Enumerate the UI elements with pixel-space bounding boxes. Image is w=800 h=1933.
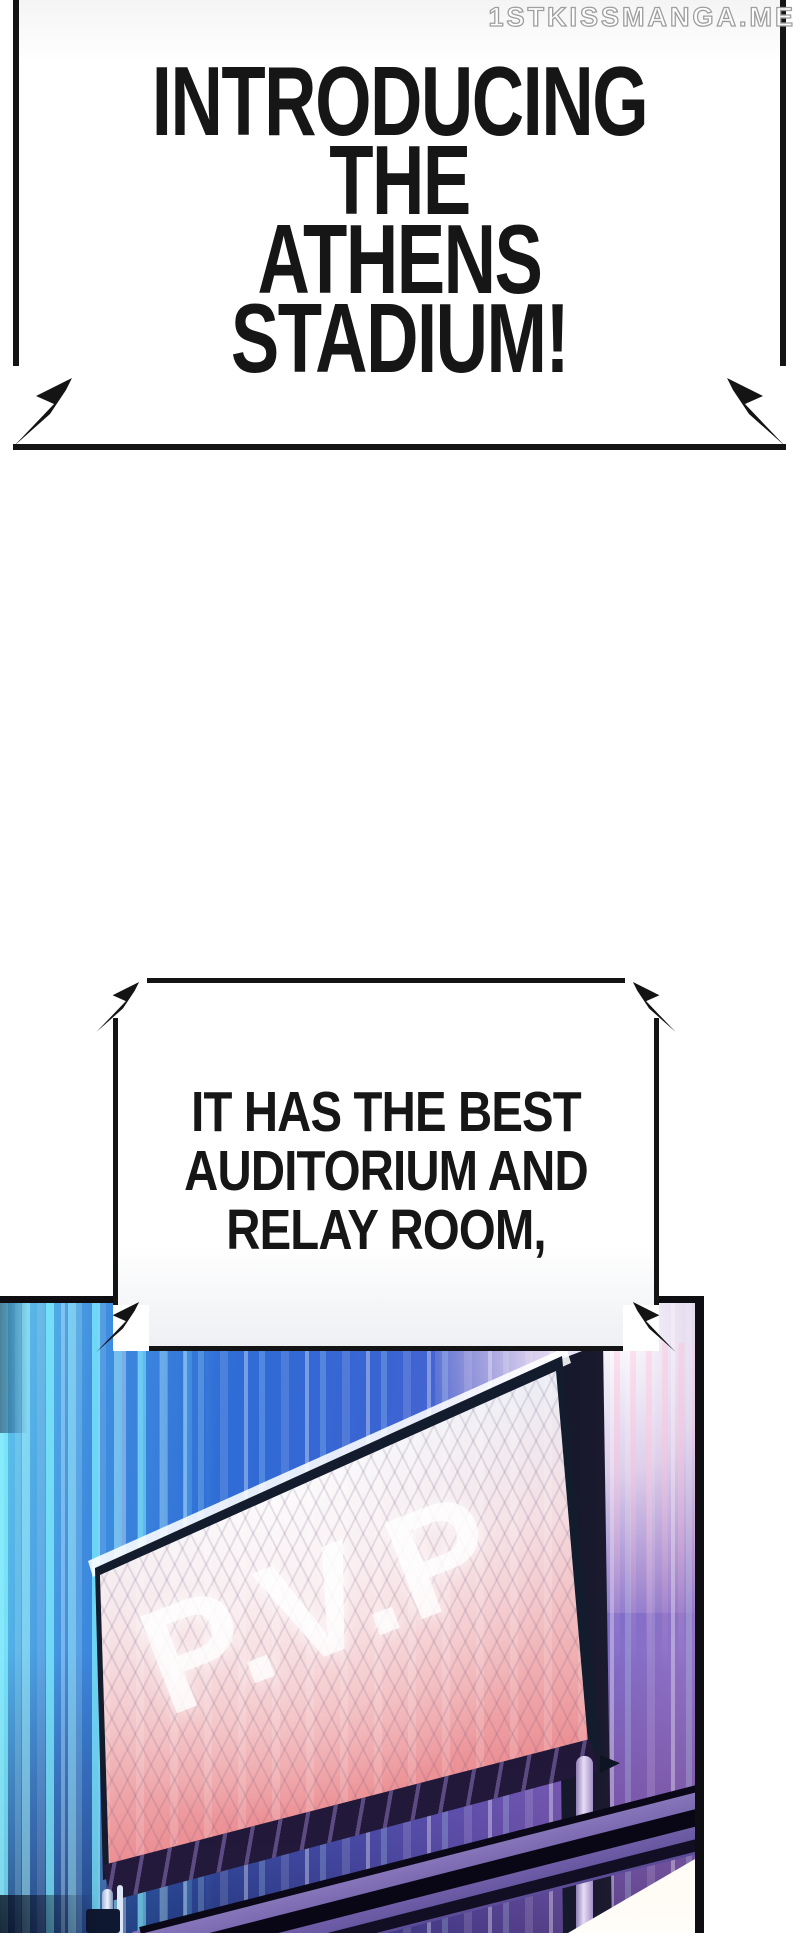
bubble-tail-spike-icon [10, 374, 74, 450]
speech-bubble-1: INTRODUCING THE ATHENS STADIUM! [13, 0, 786, 450]
manga-page: P.V.P INTRODUCING THE ATHENS STADIUM! [0, 0, 800, 1933]
bubble-text-line: ATHENS STADIUM! [118, 220, 681, 378]
bubble-tail-spike-icon [725, 374, 789, 450]
bubble-text-line: AUDITORIUM AND [164, 1142, 609, 1201]
bubble-tail-spike-icon [92, 1299, 142, 1355]
speech-bubble-2: IT HAS THE BEST AUDITORIUM AND RELAY ROO… [113, 978, 659, 1351]
bubble-text: IT HAS THE BEST AUDITORIUM AND RELAY ROO… [118, 1083, 654, 1260]
corner-shadow [0, 1895, 130, 1933]
bubble-text: INTRODUCING THE ATHENS STADIUM! [19, 62, 780, 378]
bubble-tail-spike-icon [630, 1299, 680, 1355]
pink-light-streaks [598, 1343, 695, 1673]
corner-shade [0, 1303, 28, 1433]
comic-panel: P.V.P [0, 1296, 704, 1933]
bubble-text-line: IT HAS THE BEST [164, 1083, 609, 1142]
bubble-text-line: INTRODUCING THE [118, 62, 681, 220]
watermark: 1STKISSMANGA.ME [488, 2, 796, 33]
bubble-tail-spike-icon [630, 979, 680, 1035]
bubble-text-line: RELAY ROOM, [164, 1201, 609, 1260]
bubble-tail-spike-icon [92, 979, 142, 1035]
